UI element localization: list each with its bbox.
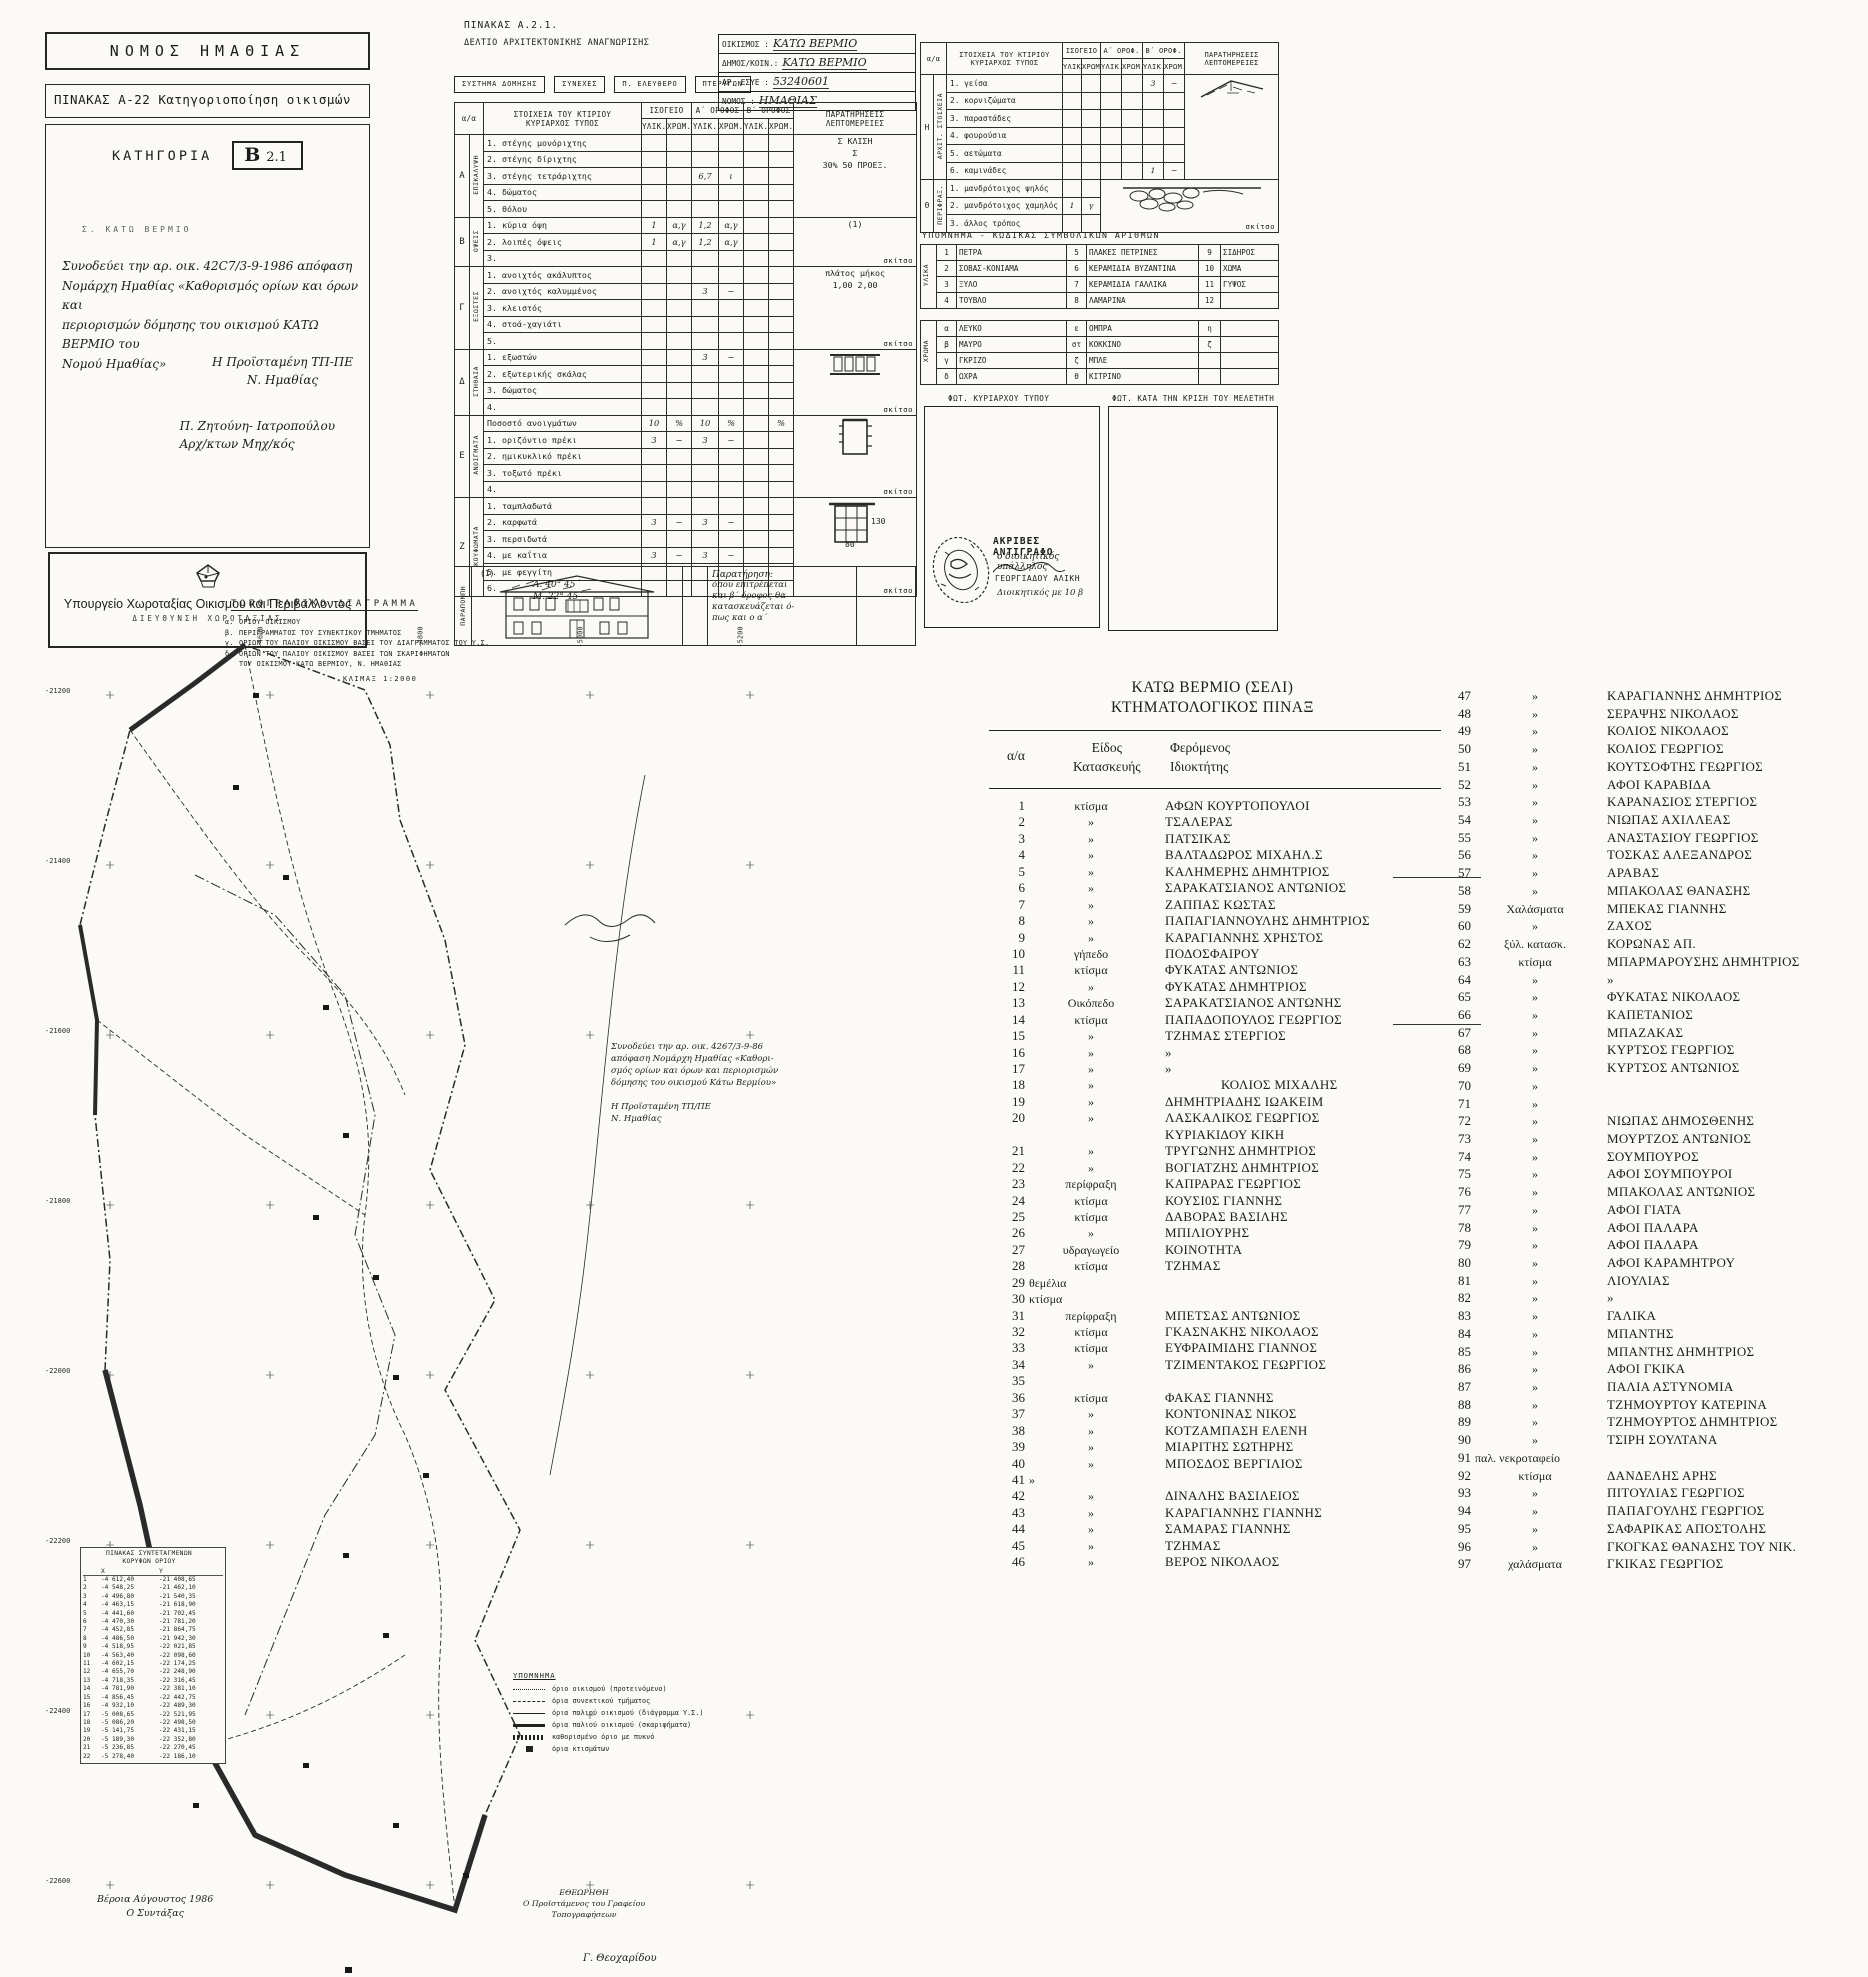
section-name: ΠΕΡΙΦΡΑΞ.: [934, 180, 947, 233]
section-letter: Δ: [455, 349, 470, 415]
col-floor: Α΄ ΟΡΟΦ.: [1101, 43, 1143, 59]
value-cell: [744, 382, 769, 399]
coordinate-row: 19-5 141,75-22 431,15: [83, 1727, 223, 1735]
map-approved-block: ΕΘΕΩΡΗΘΗ Ο Προϊστάμενος του Γραφείου Τοπ…: [523, 1887, 645, 1920]
coord-y-header: Υ: [159, 1568, 221, 1575]
value-cell: ι: [719, 168, 744, 185]
entry-number: 4: [985, 847, 1025, 863]
cadastre-row: 1 κτίσμα ΑΦΩΝ ΚΟΥΡΤΟΠΟΥΛΟΙ: [985, 798, 1440, 814]
value-cell: −: [719, 514, 744, 531]
entry-type: »: [1471, 1327, 1599, 1342]
entry-owner: »: [1157, 1045, 1440, 1061]
value-cell: 1: [1143, 162, 1164, 180]
value-cell: [744, 217, 769, 234]
coordinate-row: 8-4 486,50-21 942,30: [83, 1635, 223, 1643]
entry-owner: ΚΑΠΕΤΑΝΙΟΣ: [1599, 1007, 1865, 1023]
cadastre-row: 21 » ΤΡΥΓΩΝΗΣ ΔΗΜΗΤΡΙΟΣ: [985, 1143, 1440, 1159]
cadastre-row: 22 » ΒΟΓΙΑΤΖΗΣ ΔΗΜΗΤΡΙΟΣ: [985, 1160, 1440, 1176]
value-cell: [642, 300, 667, 317]
entry-owner: ΛΙΟΥΛΙΑΣ: [1599, 1273, 1865, 1289]
legend-symbol-dashed: [513, 1701, 545, 1702]
entry-owner: ΑΦΩΝ ΚΟΥΡΤΟΠΟΥΛΟΙ: [1157, 798, 1440, 814]
entry-type: »: [1471, 1291, 1599, 1306]
section-name: ΕΞΩΣΤΕΣ: [470, 267, 484, 350]
legend-cell: ε: [1067, 321, 1087, 337]
architectural-sheet-continued: α/α ΣΤΟΙΧΕΙΑ ΤΟΥ ΚΤΙΡΙΟΥΚΥΡΙΑΡΧΟΣ ΤΥΠΟΣ …: [920, 40, 1280, 665]
value-cell: [769, 531, 794, 548]
value-cell: [769, 481, 794, 498]
entry-type: κτίσμα: [1471, 1469, 1599, 1484]
entry-type: »: [1471, 1114, 1599, 1129]
map-symbol-item: όρια κτισμάτων: [513, 1743, 748, 1755]
cadastre-column-1: 1 κτίσμα ΑΦΩΝ ΚΟΥΡΤΟΠΟΥΛΟΙ2 » ΤΣΑΛΕΡΑΣ3 …: [985, 798, 1440, 1571]
cadastre-row: 84 » ΜΠΑΝΤΗΣ: [1443, 1326, 1865, 1344]
category-value: Β2.1: [232, 141, 303, 170]
entry-type: »: [1025, 1407, 1157, 1422]
legend-cell: ΚΕΡΑΜΙΔΙΑ ΓΑΛΛΙΚΑ: [1087, 277, 1199, 293]
value-cell: [1164, 110, 1185, 128]
entry-number: 42: [985, 1488, 1025, 1504]
entry-owner: ΤΟΣΚΑΣ ΑΛΕΞΑΝΔΡΟΣ: [1599, 847, 1865, 863]
entry-type: »: [1025, 1506, 1157, 1521]
row-label: 2. κορνιζώματα: [947, 92, 1063, 110]
value-cell: [719, 382, 744, 399]
entry-type: κτίσμα: [1025, 1013, 1157, 1028]
grid-y-label: -22000: [45, 1367, 70, 1375]
legend-cell: [1221, 321, 1279, 337]
entry-type: »: [1025, 881, 1157, 896]
legend-cell: 5: [1067, 245, 1087, 261]
entry-type: περίφραξη: [1025, 1309, 1157, 1324]
cadastre-row: 15 » ΤΖΗΜΑΣ ΣΤΕΡΓΙΟΣ: [985, 1028, 1440, 1044]
value-cell: [1063, 162, 1082, 180]
col-sub: ΧΡΩΜ.: [719, 119, 744, 135]
value-cell: [769, 201, 794, 218]
legend-cell: ΓΚΡΙΖΟ: [957, 353, 1067, 369]
map-scale: ΚΛΙΜΑΞ 1:2000: [343, 675, 417, 683]
entry-number: 62: [1443, 936, 1471, 952]
value-cell: [744, 399, 769, 416]
skitso-label: σκίτσο: [883, 405, 913, 414]
entry-type: »: [1471, 1150, 1599, 1165]
entry-type: »: [1025, 1029, 1157, 1044]
entry-owner: ΦΥΚΑΤΑΣ ΑΝΤΩΝΙΟΣ: [1157, 962, 1440, 978]
entry-number: 73: [1443, 1131, 1471, 1147]
coordinate-row: 21-5 236,85-22 270,45: [83, 1744, 223, 1752]
entry-type: »: [1471, 973, 1599, 988]
entry-type: »: [1471, 1309, 1599, 1324]
row-label: 2. ανοιχτός καλυμμένος: [484, 283, 642, 300]
coordinate-row: 12-4 655,70-22 248,90: [83, 1668, 223, 1676]
map-legend-line: ΤΟΥ ΟΙΚΙΣΜΟΥ ΚΑΤΩ ΒΕΡΜΙΟΥ, Ν. ΗΜΑΘΙΑΣ: [225, 659, 489, 670]
value-cell: [1101, 127, 1122, 145]
rule: [989, 788, 1441, 789]
value-cell: 6,7: [692, 168, 719, 185]
entry-type: »: [1471, 1504, 1599, 1519]
cadastre-row: 94 » ΠΑΠΑΓΟΥΛΗΣ ΓΕΩΡΓΙΟΣ: [1443, 1503, 1865, 1521]
entry-number: 20: [985, 1110, 1025, 1126]
cadastre-row: 69 » ΚΥΡΤΣΟΣ ΑΝΤΩΝΙΟΣ: [1443, 1060, 1865, 1078]
legend-group-label: ΧΡΩΜΑ: [921, 321, 937, 385]
grid-x-label: -4600: [257, 626, 265, 647]
sheet-title: ΠΙΝΑΚΑΣ Α.2.1.: [464, 20, 558, 31]
sheet-subtitle: ΔΕΛΤΙΟ ΑΡΧΙΤΕΚΤΟΝΙΚΗΣ ΑΝΑΓΝΩΡΙΣΗΣ: [464, 38, 649, 48]
entry-owner: ΠΑΤΣΙΚΑΣ: [1157, 831, 1440, 847]
cadastre-row: ΚΥΡΙΑΚΙΔΟΥ ΚΙΚΗ: [985, 1127, 1440, 1143]
entry-owner: ΜΠΙΛΙΟΥΡΗΣ: [1157, 1225, 1440, 1241]
row-label: 1. στέγης μονόριχτης: [484, 135, 642, 152]
info-row: ΟΙΚΙΣΜΟΣ : ΚΑΤΩ ΒΕΡΜΙΟ: [719, 35, 915, 54]
value-cell: [1164, 127, 1185, 145]
entry-type: »: [1471, 1079, 1599, 1094]
value-cell: [744, 465, 769, 482]
entry-owner: ΤΣΑΛΕΡΑΣ: [1157, 814, 1440, 830]
coordinate-row: 15-4 856,45-22 442,75: [83, 1694, 223, 1702]
value-cell: 10: [642, 415, 667, 432]
entry-type: »: [1471, 1398, 1599, 1413]
grid-y-label: -21600: [45, 1027, 70, 1035]
entry-number: 97: [1443, 1556, 1471, 1572]
entry-type: »: [1025, 931, 1157, 946]
entry-type: »: [1471, 813, 1599, 828]
entry-owner: ΜΠΑΚΟΛΑΣ ΘΑΝΑΣΗΣ: [1599, 883, 1865, 899]
cadastre-row: 23 περίφραξη ΚΑΠΡΑΡΑΣ ΓΕΩΡΓΙΟΣ: [985, 1176, 1440, 1192]
value-cell: 1,2: [692, 234, 719, 251]
legend-row: 4ΤΟΥΒΛΟ8ΛΑΜΑΡΙΝΑ12: [921, 293, 1279, 309]
col-floor: ΙΣΟΓΕΙΟ: [1063, 43, 1101, 59]
coord-x-header: Χ: [101, 1568, 159, 1575]
row-label: 2. καρφωτά: [484, 514, 642, 531]
value-cell: 3: [642, 514, 667, 531]
coordinate-row: 20-5 189,30-22 352,80: [83, 1736, 223, 1744]
entry-owner: ΦΥΚΑΤΑΣ ΝΙΚΟΛΑΟΣ: [1599, 989, 1865, 1005]
entry-owner: ΤΖΗΜΑΣ: [1157, 1538, 1440, 1554]
entry-number: 90: [1443, 1432, 1471, 1448]
value-cell: α,γ: [667, 217, 692, 234]
cadastre-row: 79 » ΑΦΟΙ ΠΑΛΑΡΑ: [1443, 1237, 1865, 1255]
entry-type: »: [1471, 742, 1599, 757]
cadastre-row: 89 » ΤΖΗΜΟΥΡΤΟΣ ΔΗΜΗΤΡΙΟΣ: [1443, 1414, 1865, 1432]
grid-y-label: -22200: [45, 1537, 70, 1545]
entry-owner: ΚΑΡΑΓΙΑΝΝΗΣ ΧΡΗΣΤΟΣ: [1157, 930, 1440, 946]
photo-caption-left: ΦΩΤ. ΚΥΡΙΑΡΧΟΥ ΤΥΠΟΥ: [948, 394, 1049, 403]
entry-owner: ΚΟΥΣΙ0Σ ΓΙΑΝΝΗΣ: [1157, 1193, 1440, 1209]
category-row: ΚΑΤΗΓΟΡΙΑ Β2.1: [46, 141, 369, 170]
value-cell: [667, 349, 692, 366]
value-cell: [744, 514, 769, 531]
entry-owner: ΕΥΦΡΑΙΜΙΔΗΣ ΓΙΑΝΝΟΣ: [1157, 1340, 1440, 1356]
entry-type: »: [1471, 848, 1599, 863]
legend-symbol-sq: [526, 1746, 533, 1752]
entry-number: 50: [1443, 741, 1471, 757]
entry-type: »: [1471, 1274, 1599, 1289]
value-cell: 3: [692, 432, 719, 449]
value-cell: −: [667, 514, 692, 531]
map-symbol-item: όρια συνεκτικού τμήματος: [513, 1695, 748, 1707]
value-cell: [692, 481, 719, 498]
cadastre-row: 46 » ΒΕΡΟΣ ΝΙΚΟΛΑΟΣ: [985, 1554, 1440, 1570]
row-label: 4. με καΐτια: [484, 547, 642, 564]
legend-cell: 7: [1067, 277, 1087, 293]
entry-owner: ΑΦΟΙ ΠΑΛΑΡΑ: [1599, 1237, 1865, 1253]
entry-type: »: [1471, 990, 1599, 1005]
entry-type: »: [1471, 1522, 1599, 1537]
cadastre-row: 41 »: [985, 1472, 1440, 1488]
entry-number: 74: [1443, 1149, 1471, 1165]
col-sub: ΥΛΙΚ.: [1143, 59, 1164, 75]
entry-type: »: [1471, 1486, 1599, 1501]
value-cell: [744, 201, 769, 218]
entry-owner: ΣΕΡΑΨΗΣ ΝΙΚΟΛΑΟΣ: [1599, 706, 1865, 722]
value-cell: [692, 399, 719, 416]
value-cell: [1082, 127, 1101, 145]
entry-type: »: [1471, 1132, 1599, 1147]
entry-type: »: [1025, 1457, 1157, 1472]
entry-owner: »: [1599, 972, 1865, 988]
entry-number: 79: [1443, 1237, 1471, 1253]
cadastre-row: 43 » ΚΑΡΑΓΙΑΝΝΗΣ ΓΙΑΝΝΗΣ: [985, 1505, 1440, 1521]
remark-line: (1): [794, 218, 916, 230]
entry-number: 5: [985, 864, 1025, 880]
entry-owner: ΜΠΑΝΤΗΣ ΔΗΜΗΤΡΙΟΣ: [1599, 1344, 1865, 1360]
entry-type: »: [1471, 866, 1599, 881]
value-cell: [642, 448, 667, 465]
entry-type: »: [1025, 832, 1157, 847]
entry-owner: ΚΟΛΙΟΣ ΓΕΩΡΓΙΟΣ: [1599, 741, 1865, 757]
scan-artifact: [1393, 877, 1481, 878]
system-option: Π. ΕΛΕΥΘΕΡΟ: [614, 76, 685, 93]
entry-number: 21: [985, 1143, 1025, 1159]
entry-owner: ΜΠΑΖΑΚΑΣ: [1599, 1025, 1865, 1041]
entry-number: 37: [985, 1406, 1025, 1422]
round-stamp-icon: [931, 522, 993, 612]
entry-type: κτίσμα: [1471, 955, 1599, 970]
row-label: 3.: [484, 250, 642, 267]
entry-number: 24: [985, 1193, 1025, 1209]
cadastre-row: 77 » ΑΦΟΙ ΓΙΑΤΑ: [1443, 1202, 1865, 1220]
entry-type: »: [1025, 1424, 1157, 1439]
cadastral-table: ΚΑΤΩ ΒΕΡΜΙΟ (ΣΕΛΙ) ΚΤΗΜΑΤΟΛΟΓΙΚΟΣ ΠΙΝΑΞ …: [985, 672, 1865, 1682]
map-symbol-item: καθορισμένο όριο με πυκνό: [513, 1731, 748, 1743]
category-letter: Β: [244, 144, 260, 166]
entry-owner: ΑΡΑΒΑΣ: [1599, 865, 1865, 881]
entry-owner: ΠΑΠΑΓΟΥΛΗΣ ΓΕΩΡΓΙΟΣ: [1599, 1503, 1865, 1519]
coordinate-row: 18-5 086,20-22 498,50: [83, 1719, 223, 1727]
value-cell: [769, 514, 794, 531]
cadastre-row: 13 Οικόπεδο ΣΑΡΑΚΑΤΣΙΑΝΟΣ ΑΝΤΩΝΗΣ: [985, 995, 1440, 1011]
section-remark: Σ ΚΛΙΣΗΣ30% 50 ΠΡΟΕΞ.: [794, 135, 917, 218]
old-boundary-thick-left: [80, 925, 97, 1115]
row-label: 1. ανοιχτός ακάλυπτος: [484, 267, 642, 284]
legend-row: ΥΛΙΚΑ1ΠΕΤΡΑ5ΠΛΑΚΕΣ ΠΕΤΡΙΝΕΣ9ΣΙΔΗΡΟΣ: [921, 245, 1279, 261]
legend-cell: ΚΕΡΑΜΙΔΙΑ ΒΥΖΑΝΤΙΝΑ: [1087, 261, 1199, 277]
entry-number: 57: [1443, 865, 1471, 881]
value-cell: [642, 366, 667, 383]
entry-number: 55: [1443, 830, 1471, 846]
entry-number: 92: [1443, 1468, 1471, 1484]
entry-number: 69: [1443, 1060, 1471, 1076]
building-marks: [193, 693, 469, 1973]
entry-number: 60: [1443, 918, 1471, 934]
window-sketch-icon: [794, 416, 916, 462]
entry-number: 44: [985, 1521, 1025, 1537]
section-name: ΣΤΗΘΑΙΑ: [470, 349, 484, 415]
entry-number: 88: [1443, 1397, 1471, 1413]
table-row: ΖΚΟΥΦΩΜΑΤΑ1. ταμπλαδωτά13080σκίτσο: [455, 498, 917, 515]
col-sub: ΧΡΩΜ.: [1122, 59, 1143, 75]
eave-sketch-icon: [1185, 75, 1278, 107]
value-cell: [1082, 92, 1101, 110]
map-decision-note: Συνοδεύει την αρ. οικ. 4267/3-9-86 απόφα…: [611, 1041, 791, 1125]
entry-owner: ΑΦΟΙ ΚΑΡΑΜΗΤΡΟΥ: [1599, 1255, 1865, 1271]
balustrade-sketch-icon: [794, 350, 916, 380]
entry-owner: ΠΑΛΙΑ ΑΣΤΥΝΟΜΙΑ: [1599, 1379, 1865, 1395]
value-cell: [769, 217, 794, 234]
value-cell: %: [667, 415, 692, 432]
legend-cell: 2: [937, 261, 957, 277]
entry-number: 35: [985, 1373, 1025, 1389]
section-remark: (1)σκίτσο: [794, 217, 917, 267]
cadastre-row: 73 » ΜΟΥΡΤΖΟΣ ΑΝΤΩΝΙΟΣ: [1443, 1131, 1865, 1149]
entry-type: Οικόπεδο: [1025, 996, 1157, 1011]
entry-number: 18: [985, 1077, 1025, 1093]
entry-number: 13: [985, 995, 1025, 1011]
value-cell: 10: [692, 415, 719, 432]
col-floor: Α΄ ΟΡΟΦΟΣ: [692, 103, 744, 119]
cadastre-row: 26 » ΜΠΙΛΙΟΥΡΗΣ: [985, 1225, 1440, 1241]
legend-cell: ΩΧΡΑ: [957, 369, 1067, 385]
cadastre-row: 29 θεμέλια: [985, 1275, 1440, 1291]
cadastre-row: 3 » ΠΑΤΣΙΚΑΣ: [985, 831, 1440, 847]
value-cell: [719, 333, 744, 350]
entry-type: »: [1471, 724, 1599, 739]
section-letter: Γ: [455, 267, 470, 350]
entry-number: 15: [985, 1028, 1025, 1044]
legend-row: ΧΡΩΜΑαΛΕΥΚΟεΟΜΠΡΑη: [921, 321, 1279, 337]
legend-row: βΜΑΥΡΟστΚΟΚΚΙΝΟζ: [921, 337, 1279, 353]
coordinate-row: 16-4 932,10-22 489,30: [83, 1702, 223, 1710]
legend-cell: γ: [937, 353, 957, 369]
value-cell: 3: [642, 547, 667, 564]
cadastre-title-line2: ΚΤΗΜΑΤΟΛΟΓΙΚΟΣ ΠΙΝΑΞ: [985, 698, 1440, 718]
value-cell: 3: [692, 514, 719, 531]
category-label: ΚΑΤΗΓΟΡΙΑ: [112, 148, 212, 164]
entry-number: 52: [1443, 777, 1471, 793]
entry-number: 36: [985, 1390, 1025, 1406]
entry-owner: ΜΙΑΡΙΤΗΣ ΣΩΤΗΡΗΣ: [1157, 1439, 1440, 1455]
entry-owner: ΤΣΙΡΗ ΣΟΥΛΤΑΝΑ: [1599, 1432, 1865, 1448]
entry-number: 6: [985, 880, 1025, 896]
legend-symbol-hatch: [513, 1735, 545, 1740]
row-label: 3. παραστάδες: [947, 110, 1063, 128]
entry-owner: ΠΑΠΑΓΙΑΝΝΟΥΛΗΣ ΔΗΜΗΤΡΙΟΣ: [1157, 913, 1440, 929]
cadastre-row: 25 κτίσμα ΔΑΒΟΡΑΣ ΒΑΣΙΛΗΣ: [985, 1209, 1440, 1225]
info-value: ΚΑΤΩ ΒΕΡΜΙΟ: [773, 37, 857, 51]
entry-owner: ΝΙΩΠΑΣ ΔΗΜΟΣΘΕΝΗΣ: [1599, 1113, 1865, 1129]
entry-owner: ΜΠΟΣΔΟΣ ΒΕΡΓΙΛΙΟΣ: [1157, 1456, 1440, 1472]
cadastre-row: 8 » ΠΑΠΑΓΙΑΝΝΟΥΛΗΣ ΔΗΜΗΤΡΙΟΣ: [985, 913, 1440, 929]
entry-owner: ΚΟΥΤΣΟΦΤΗΣ ΓΕΩΡΓΙΟΣ: [1599, 759, 1865, 775]
value-cell: [719, 448, 744, 465]
colors-legend-table: ΧΡΩΜΑαΛΕΥΚΟεΟΜΠΡΑηβΜΑΥΡΟστΚΟΚΚΙΝΟζγΓΚΡΙΖ…: [920, 320, 1279, 385]
value-cell: [769, 151, 794, 168]
entry-number: 25: [985, 1209, 1025, 1225]
col-elements: ΣΤΟΙΧΕΙΑ ΤΟΥ ΚΤΙΡΙΟΥΚΥΡΙΑΡΧΟΣ ΤΥΠΟΣ: [484, 103, 642, 135]
entry-type: »: [1025, 1062, 1157, 1077]
value-cell: [1122, 75, 1143, 93]
coordinate-row: 7-4 452,85-21 864,75: [83, 1626, 223, 1634]
legend-cell: ΓΥΨΟΣ: [1221, 277, 1279, 293]
value-cell: [667, 184, 692, 201]
entry-owner: ΜΠΕΚΑΣ ΓΙΑΝΝΗΣ: [1599, 901, 1865, 917]
svg-text:80: 80: [845, 540, 855, 548]
value-cell: [744, 151, 769, 168]
signature-head: Η Προϊσταμένη ΤΠ-ΠΕ Ν. Ημαθίας: [212, 353, 353, 389]
entry-owner: ΒΑΛΤΑΔΩΡΟΣ ΜΙΧΑΗΛ.Σ: [1157, 847, 1440, 863]
entry-owner: ΤΖΗΜΑΣ ΣΤΕΡΓΙΟΣ: [1157, 1028, 1440, 1044]
value-cell: [744, 366, 769, 383]
coordinate-row: 17-5 008,65-22 521,95: [83, 1711, 223, 1719]
cadastre-row: 39 » ΜΙΑΡΙΤΗΣ ΣΩΤΗΡΗΣ: [985, 1439, 1440, 1455]
cadastre-row: 64 » »: [1443, 972, 1865, 990]
legend-cell: [1221, 353, 1279, 369]
entry-number: 33: [985, 1340, 1025, 1356]
value-cell: [1101, 110, 1122, 128]
col-sub: ΥΛΙΚ.: [1063, 59, 1082, 75]
remark-line: 1,00 2,00: [794, 279, 916, 291]
entry-owner: ΠΙΤΟΥΛΙΑΣ ΓΕΩΡΓΙΟΣ: [1599, 1485, 1865, 1501]
legend-cell: ΣΟΒΑΣ-ΚΟΝΙΑΜΑ: [957, 261, 1067, 277]
entry-number: 8: [985, 913, 1025, 929]
value-cell: [744, 432, 769, 449]
cadastre-row: 70 »: [1443, 1078, 1865, 1096]
col-floor: ΙΣΟΓΕΙΟ: [642, 103, 692, 119]
cadastre-row: 97 χαλάσματα ΓΚΙΚΑΣ ΓΕΩΡΓΙΟΣ: [1443, 1556, 1865, 1574]
entry-number: 23: [985, 1176, 1025, 1192]
row-label: 3. στέγης τετράριχτης: [484, 168, 642, 185]
cadastre-row: 35: [985, 1373, 1440, 1389]
entry-number: 95: [1443, 1521, 1471, 1537]
value-cell: [642, 531, 667, 548]
cadastre-row: 80 » ΑΦΟΙ ΚΑΡΑΜΗΤΡΟΥ: [1443, 1255, 1865, 1273]
value-cell: [1063, 110, 1082, 128]
row-label: 1. οριζόντιο πρέκι: [484, 432, 642, 449]
legend-cell: [1221, 293, 1279, 309]
cadastre-row: 18 » ΚΟΛΙΟΣ ΜΙΧΑΛΗΣ: [985, 1077, 1440, 1093]
skitso-label: σκίτσο: [883, 487, 913, 496]
value-cell: [1082, 75, 1101, 93]
entry-type: »: [1471, 1026, 1599, 1041]
section-remark: σκίτσο: [794, 349, 917, 415]
legend-cell: 11: [1199, 277, 1221, 293]
legend-cell: ΛΕΥΚΟ: [957, 321, 1067, 337]
section-letter: Ε: [455, 415, 470, 498]
cadastre-row: 54 » ΝΙΩΠΑΣ ΑΧΙΛΛΕΑΣ: [1443, 812, 1865, 830]
entry-number: 82: [1443, 1290, 1471, 1306]
col-aa: α/α: [455, 103, 484, 135]
entry-owner: ΚΟΙΝΟΤΗΤΑ: [1157, 1242, 1440, 1258]
entry-type: »: [1025, 980, 1157, 995]
remark-line: Σ: [794, 147, 916, 159]
cadastre-row: 53 » ΚΑΡΑΝΑΣΙΟΣ ΣΤΕΡΓΙΟΣ: [1443, 794, 1865, 812]
map-date-block: Βέροια Αύγουστος 1986 Ο Συντάξας: [97, 1893, 213, 1921]
cadastre-row: 72 » ΝΙΩΠΑΣ ΔΗΜΟΣΘΕΝΗΣ: [1443, 1113, 1865, 1131]
grid-y-label: -21200: [45, 687, 70, 695]
value-cell: [667, 448, 692, 465]
coordinate-row: 11-4 602,15-22 174,25: [83, 1660, 223, 1668]
info-key: ΟΙΚΙΣΜΟΣ :: [719, 40, 769, 49]
entry-number: 3: [985, 831, 1025, 847]
